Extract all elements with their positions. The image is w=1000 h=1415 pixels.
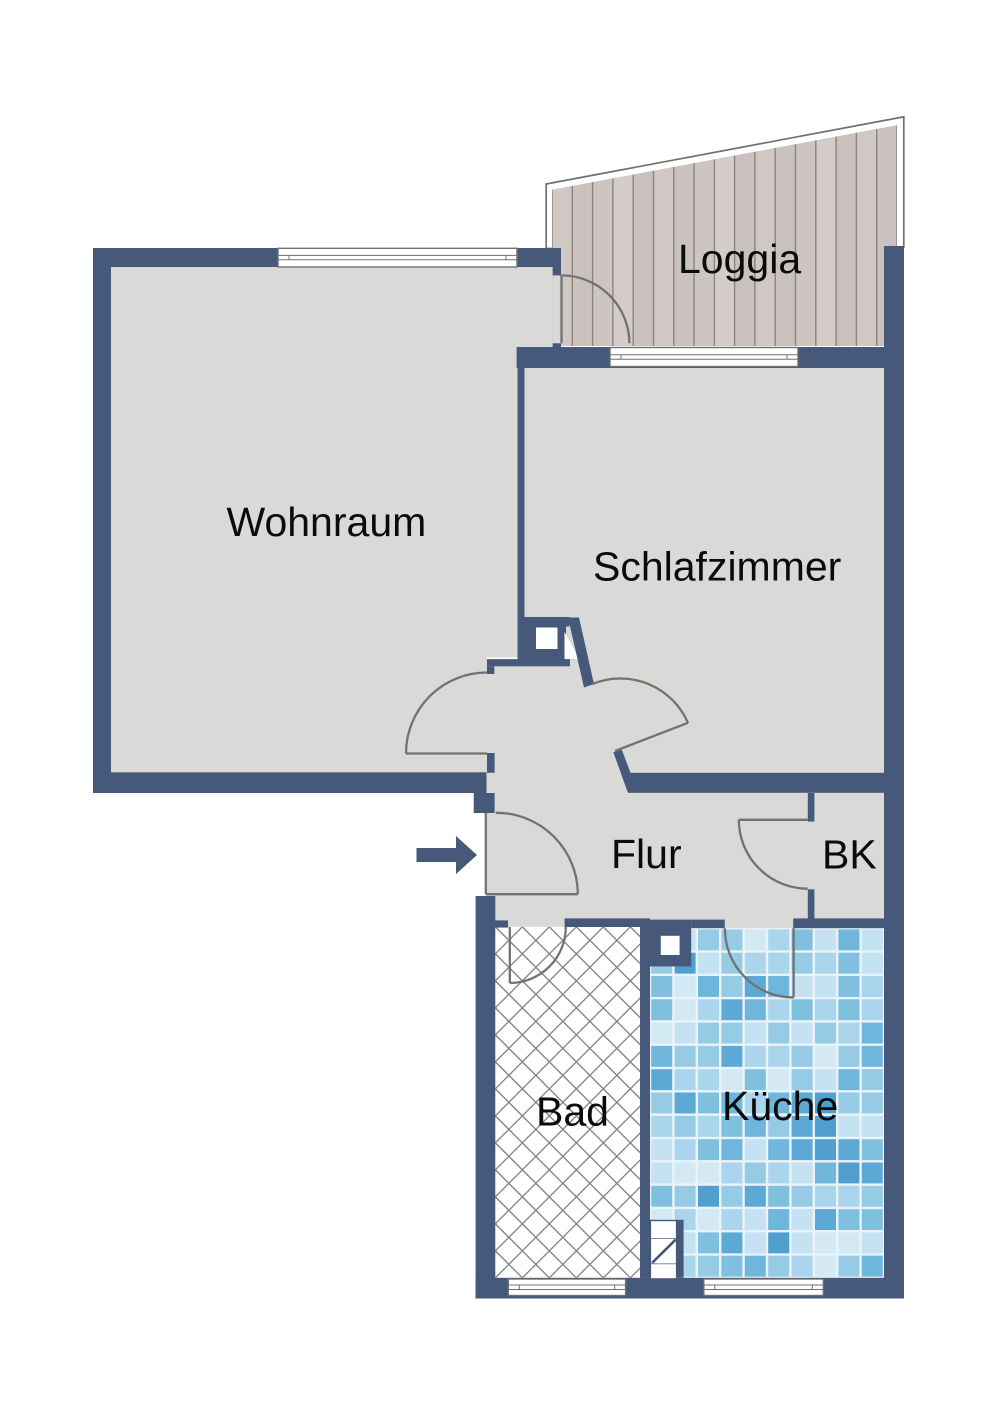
- svg-text:Loggia: Loggia: [678, 236, 801, 282]
- svg-text:Bad: Bad: [536, 1089, 609, 1135]
- svg-text:Küche: Küche: [722, 1083, 838, 1129]
- svg-text:BK: BK: [822, 832, 877, 878]
- svg-text:Flur: Flur: [611, 831, 682, 877]
- svg-text:Schlafzimmer: Schlafzimmer: [593, 544, 841, 590]
- svg-text:Wohnraum: Wohnraum: [227, 499, 427, 545]
